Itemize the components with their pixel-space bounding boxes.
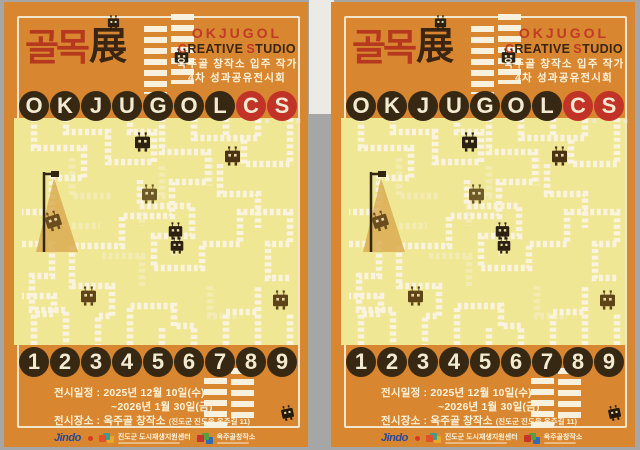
number-circle: 1 <box>19 347 49 377</box>
studio-text-block: OKJUGOL CREATIVESTUDIO 옥주골 창작소 입주 작가 4차 … <box>176 25 298 86</box>
jindo-logo-mark <box>88 436 93 441</box>
regeneration-center-emblem <box>99 435 106 442</box>
logo-fineprint <box>118 442 180 444</box>
poster: 골목 展 OKJUGOL CREATIVESTUDIO 옥주골 창작소 입주 작… <box>331 2 635 447</box>
letter-circle: G <box>470 91 500 121</box>
poster-title: 골목 展 <box>352 28 454 66</box>
poster-header: 골목 展 OKJUGOL CREATIVESTUDIO 옥주골 창작소 입주 작… <box>22 24 298 90</box>
okjugol-studio-label: 옥주골창작소 <box>217 434 256 441</box>
letter-circle: G <box>143 91 173 121</box>
venue-address: (진도군 진도읍 옥주길 11) <box>169 417 250 426</box>
logos-row: Jindo 진도군 도시재생지원센터 옥주골창작소 <box>54 431 255 446</box>
robot-icon <box>462 132 477 151</box>
robot-icon <box>552 146 567 165</box>
title-hanja: 展 <box>89 26 127 68</box>
crosswalk-column <box>144 26 167 94</box>
jindo-logo: Jindo <box>54 431 81 446</box>
number-circle: 6 <box>501 347 531 377</box>
number-circle: 4 <box>112 347 142 377</box>
robot-icon <box>81 286 96 305</box>
jindo-logo-mark <box>415 436 420 441</box>
subtitle-line2: 4차 성과공유전시회 <box>503 72 625 86</box>
studio-text-block: OKJUGOL CREATIVESTUDIO 옥주골 창작소 입주 작가 4차 … <box>503 25 625 86</box>
number-circle: 4 <box>439 347 469 377</box>
studio-name-en: OKJUGOL <box>176 25 298 41</box>
number-circle: 2 <box>377 347 407 377</box>
number-circle: 7 <box>205 347 235 377</box>
letter-circle: O <box>501 91 531 121</box>
schedule-line2: ~2026년 1월 30일(금) <box>381 400 582 414</box>
robot-icon <box>135 132 150 151</box>
regeneration-center-label: 진도군 도시재생지원센터 <box>118 434 191 441</box>
okjugol-studio-emblem <box>197 435 204 442</box>
letter-circle: L <box>205 91 235 121</box>
robot-icon <box>434 15 447 30</box>
letter-circles-row: O K J U G O L C . S . <box>346 91 624 121</box>
letter-circle: O <box>346 91 376 121</box>
number-circle: 1 <box>346 347 376 377</box>
letter-circle: C <box>563 91 593 121</box>
number-circle: 3 <box>81 347 111 377</box>
venue-line: 전시장소 : 옥주골 창작소 (진도군 진도읍 옥주길 11) <box>54 414 255 428</box>
number-circle: 6 <box>174 347 204 377</box>
number-circle: 8 <box>563 347 593 377</box>
logos-row: Jindo 진도군 도시재생지원센터 옥주골창작소 <box>381 431 582 446</box>
number-circles-row: 1 2 3 4 5 6 7 8 9 <box>19 347 297 377</box>
number-circle: 3 <box>408 347 438 377</box>
stage: 골목 展 OKJUGOL CREATIVESTUDIO 옥주골 창작소 입주 작… <box>0 0 640 450</box>
period-dot: . <box>622 101 629 127</box>
title-korean: 골목 <box>25 29 87 66</box>
letter-circle: U <box>112 91 142 121</box>
studio-name-line2: CREATIVESTUDIO <box>503 42 625 56</box>
poster-header: 골목 展 OKJUGOL CREATIVESTUDIO 옥주골 창작소 입주 작… <box>349 24 625 90</box>
robot-icon <box>600 290 615 309</box>
robot-icon <box>273 290 288 309</box>
letter-circles-row: O K J U G O L C . S . <box>19 91 297 121</box>
subtitle-line1: 옥주골 창작소 입주 작가 <box>503 58 625 72</box>
letter-circle: J <box>408 91 438 121</box>
studio-name-line2: CREATIVESTUDIO <box>176 42 298 56</box>
schedule-line: 전시일정 : 2025년 12월 10일(수) <box>381 386 582 400</box>
exhibition-info: 전시일정 : 2025년 12월 10일(수) ~2026년 1월 30일(금)… <box>381 386 582 446</box>
subtitle-line2: 4차 성과공유전시회 <box>176 72 298 86</box>
maze-art <box>14 118 298 345</box>
number-circle: 5 <box>470 347 500 377</box>
number-circle: 5 <box>143 347 173 377</box>
maze-paths <box>14 118 298 345</box>
title-korean: 골목 <box>352 29 414 66</box>
subtitle-line1: 옥주골 창작소 입주 작가 <box>176 58 298 72</box>
number-circle: 7 <box>532 347 562 377</box>
number-circles-row: 1 2 3 4 5 6 7 8 9 <box>346 347 624 377</box>
number-circle: 2 <box>50 347 80 377</box>
okjugol-studio-label: 옥주골창작소 <box>544 434 583 441</box>
venue-line: 전시장소 : 옥주골 창작소 (진도군 진도읍 옥주길 11) <box>381 414 582 428</box>
maze-paths <box>341 118 625 345</box>
letter-circle: K <box>50 91 80 121</box>
poster: 골목 展 OKJUGOL CREATIVESTUDIO 옥주골 창작소 입주 작… <box>4 2 308 447</box>
okjugol-studio-emblem <box>524 435 531 442</box>
letter-circle: S <box>267 91 297 121</box>
crosswalk-column <box>471 26 494 94</box>
title-hanja: 展 <box>416 26 454 68</box>
letter-circle: S <box>594 91 624 121</box>
schedule-line: 전시일정 : 2025년 12월 10일(수) <box>54 386 255 400</box>
robot-icon <box>225 146 240 165</box>
regeneration-center-label: 진도군 도시재생지원센터 <box>445 434 518 441</box>
letter-circle: U <box>439 91 469 121</box>
venue-address: (진도군 진도읍 옥주길 11) <box>496 417 577 426</box>
letter-circle: J <box>81 91 111 121</box>
letter-circle: K <box>377 91 407 121</box>
jindo-logo: Jindo <box>381 431 408 446</box>
logo-fineprint <box>217 442 250 444</box>
regeneration-center-emblem <box>426 435 433 442</box>
exhibition-info: 전시일정 : 2025년 12월 10일(수) ~2026년 1월 30일(금)… <box>54 386 255 446</box>
poster-title: 골목 展 <box>25 28 127 66</box>
robot-icon <box>408 286 423 305</box>
letter-circle: O <box>19 91 49 121</box>
number-circle: 9 <box>594 347 624 377</box>
logo-fineprint <box>544 442 577 444</box>
schedule-line2: ~2026년 1월 30일(금) <box>54 400 255 414</box>
period-dot: . <box>295 101 302 127</box>
letter-circle: L <box>532 91 562 121</box>
number-circle: 8 <box>236 347 266 377</box>
robot-icon <box>107 15 120 30</box>
letter-circle: O <box>174 91 204 121</box>
number-circle: 9 <box>267 347 297 377</box>
maze-art <box>341 118 625 345</box>
letter-circle: C <box>236 91 266 121</box>
logo-fineprint <box>445 442 507 444</box>
studio-name-en: OKJUGOL <box>503 25 625 41</box>
